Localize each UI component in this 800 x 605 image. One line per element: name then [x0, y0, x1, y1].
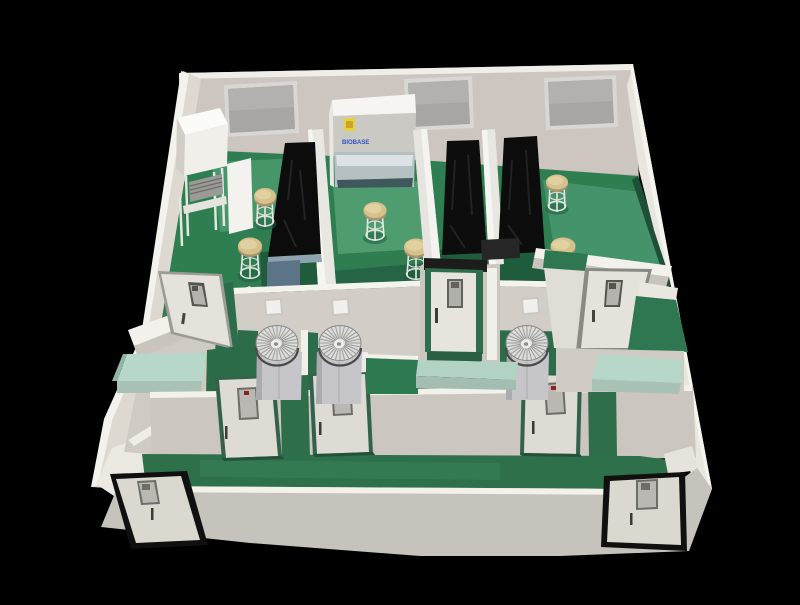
svg-text:BIOBASE: BIOBASE — [342, 140, 369, 146]
